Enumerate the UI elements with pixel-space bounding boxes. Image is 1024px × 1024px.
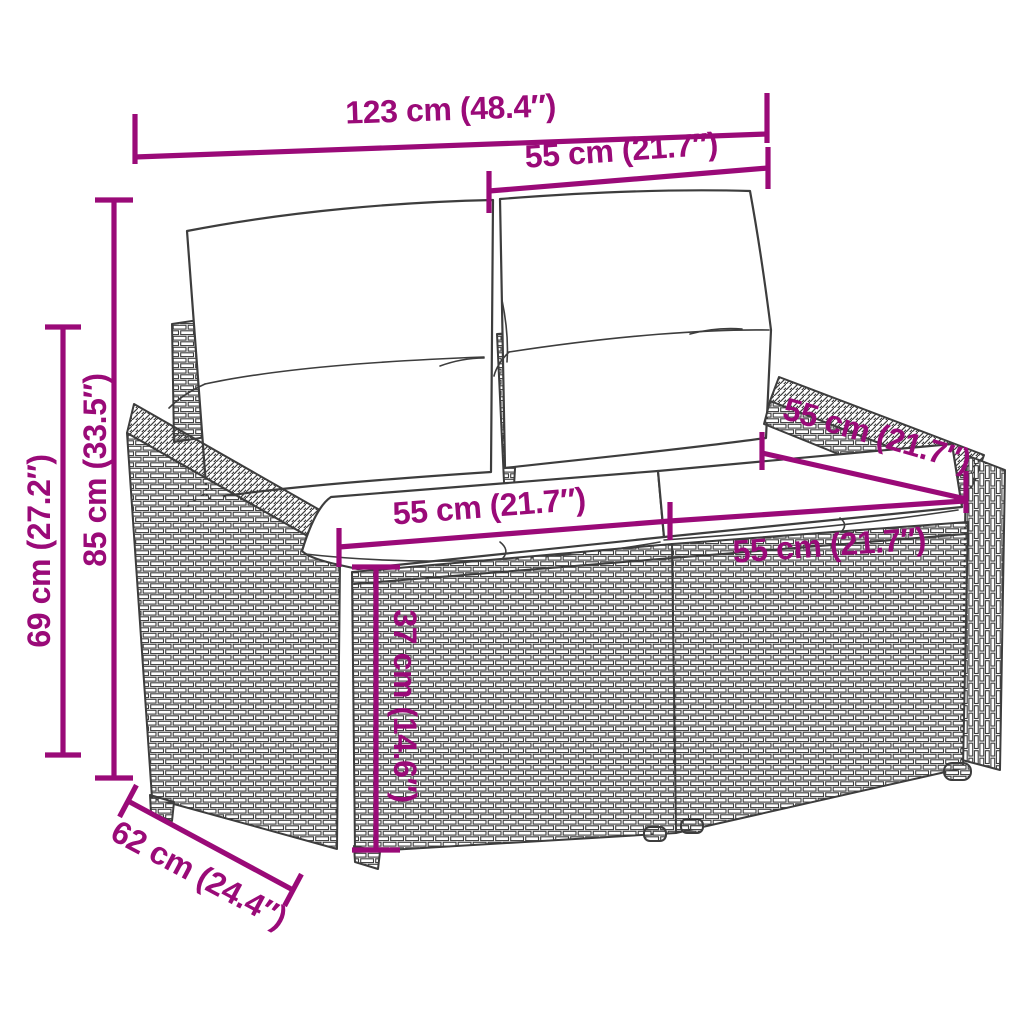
dimension-label: 85 cm (33.5″) xyxy=(77,373,113,566)
diagram-canvas: 123 cm (48.4″) 55 cm (21.7″) 85 cm (33.5… xyxy=(0,0,1024,1024)
sofa-front-panel xyxy=(352,522,968,852)
dimension-label: 69 cm (27.2″) xyxy=(21,454,57,647)
dim-armrest-height: 69 cm (27.2″) xyxy=(21,327,81,755)
back-cushion-right xyxy=(494,190,771,468)
dimension-label: 123 cm (48.4″) xyxy=(345,87,557,130)
leg-center-b xyxy=(681,819,703,833)
leg-center-a xyxy=(644,827,666,841)
dimension-label: 55 cm (21.7″) xyxy=(524,125,719,174)
product-dimension-diagram: 123 cm (48.4″) 55 cm (21.7″) 85 cm (33.5… xyxy=(0,0,1024,1024)
armrest-left-face xyxy=(127,433,340,849)
leg-front-right xyxy=(944,763,971,780)
dimension-label: 37 cm (14.6″) xyxy=(387,609,423,802)
dim-overall-height: 85 cm (33.5″) xyxy=(77,200,133,778)
